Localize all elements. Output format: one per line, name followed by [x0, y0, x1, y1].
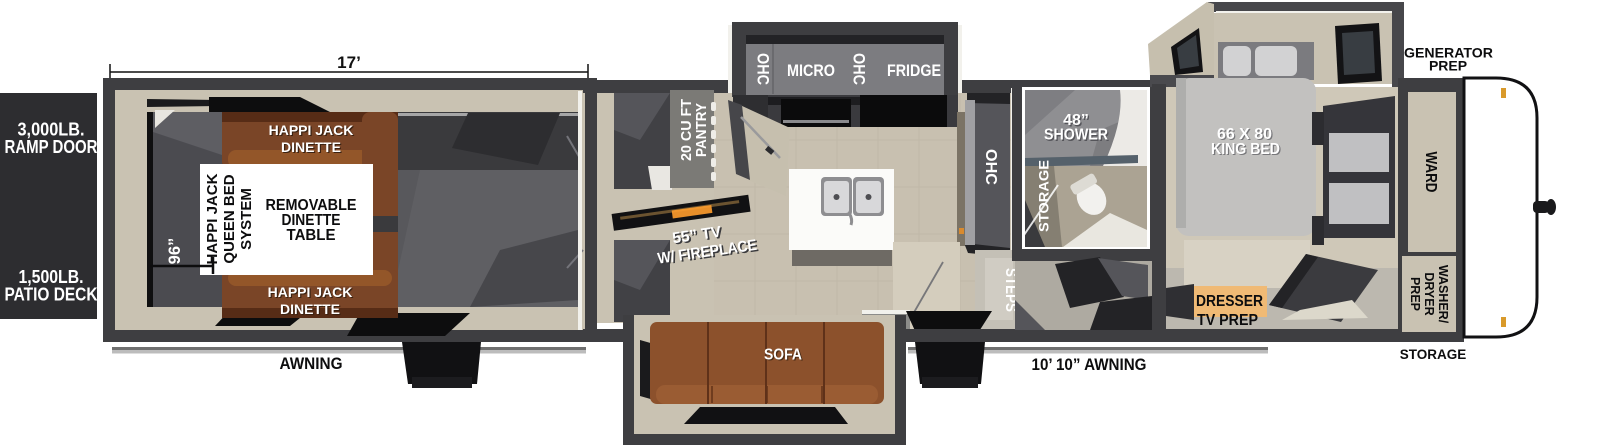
svg-text:TABLE: TABLE	[287, 227, 336, 244]
svg-text:TV PREP: TV PREP	[1197, 312, 1258, 329]
svg-text:OHC: OHC	[754, 53, 773, 85]
svg-text:AWNING: AWNING	[280, 354, 343, 373]
svg-text:DRESSER: DRESSER	[1196, 293, 1263, 310]
svg-text:HAPPI JACK: HAPPI JACK	[268, 284, 353, 300]
svg-text:DRYER: DRYER	[1422, 272, 1436, 315]
svg-text:PANTRY: PANTRY	[693, 103, 710, 157]
svg-text:MICRO: MICRO	[787, 61, 835, 80]
svg-text:PREP: PREP	[1429, 58, 1467, 74]
svg-text:KING BED: KING BED	[1211, 141, 1280, 158]
svg-text:RAMP DOOR: RAMP DOOR	[5, 137, 98, 157]
svg-text:STORAGE: STORAGE	[1036, 160, 1052, 232]
svg-text:OHC: OHC	[850, 53, 869, 85]
svg-text:DINETTE: DINETTE	[280, 301, 340, 317]
svg-text:OHC: OHC	[982, 149, 999, 185]
svg-text:PATIO DECK: PATIO DECK	[5, 285, 98, 305]
svg-text:STORAGE: STORAGE	[1400, 347, 1467, 362]
svg-text:WASHER/: WASHER/	[1436, 265, 1450, 324]
svg-text:SOFA: SOFA	[764, 347, 802, 364]
svg-text:SHOWER: SHOWER	[1044, 127, 1108, 144]
svg-text:DINETTE: DINETTE	[281, 139, 341, 155]
svg-text:HAPPI JACK: HAPPI JACK	[204, 173, 221, 264]
svg-text:PREP: PREP	[1408, 277, 1422, 311]
svg-text:SYSTEM: SYSTEM	[238, 188, 255, 250]
svg-text:17’: 17’	[337, 53, 361, 72]
svg-text:FRIDGE: FRIDGE	[887, 61, 941, 80]
svg-text:10’ 10” AWNING: 10’ 10” AWNING	[1032, 355, 1147, 374]
svg-text:QUEEN BED: QUEEN BED	[221, 174, 238, 263]
svg-text:WARD: WARD	[1422, 152, 1439, 193]
svg-text:HAPPI JACK: HAPPI JACK	[269, 122, 354, 138]
svg-text:96”: 96”	[166, 238, 184, 265]
